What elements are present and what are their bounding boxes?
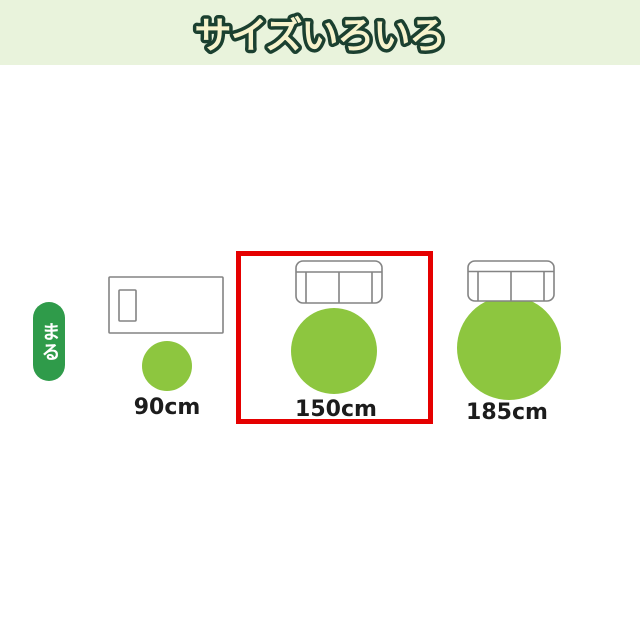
sofa-top-view-icon bbox=[295, 260, 383, 304]
shape-type-badge-label: まる bbox=[40, 322, 59, 362]
product-size-diagram: サイズいろいろ まる 90cm 150cm bbox=[0, 0, 640, 640]
round-rug-90cm bbox=[142, 341, 192, 391]
pillow-icon bbox=[119, 290, 136, 321]
size-label-185cm: 185cm bbox=[450, 400, 564, 425]
bed-top-view-icon bbox=[108, 276, 224, 334]
size-label-90cm: 90cm bbox=[110, 395, 224, 420]
page-title-text: サイズいろいろ bbox=[195, 14, 446, 57]
size-label-150cm: 150cm bbox=[279, 397, 393, 422]
round-rug-185cm bbox=[457, 296, 561, 400]
sofa-top-view-icon bbox=[467, 260, 555, 302]
round-rug-150cm bbox=[291, 308, 377, 394]
header-band: サイズいろいろ bbox=[0, 0, 640, 65]
page-title: サイズいろいろ bbox=[80, 4, 560, 62]
shape-type-badge: まる bbox=[33, 302, 65, 381]
